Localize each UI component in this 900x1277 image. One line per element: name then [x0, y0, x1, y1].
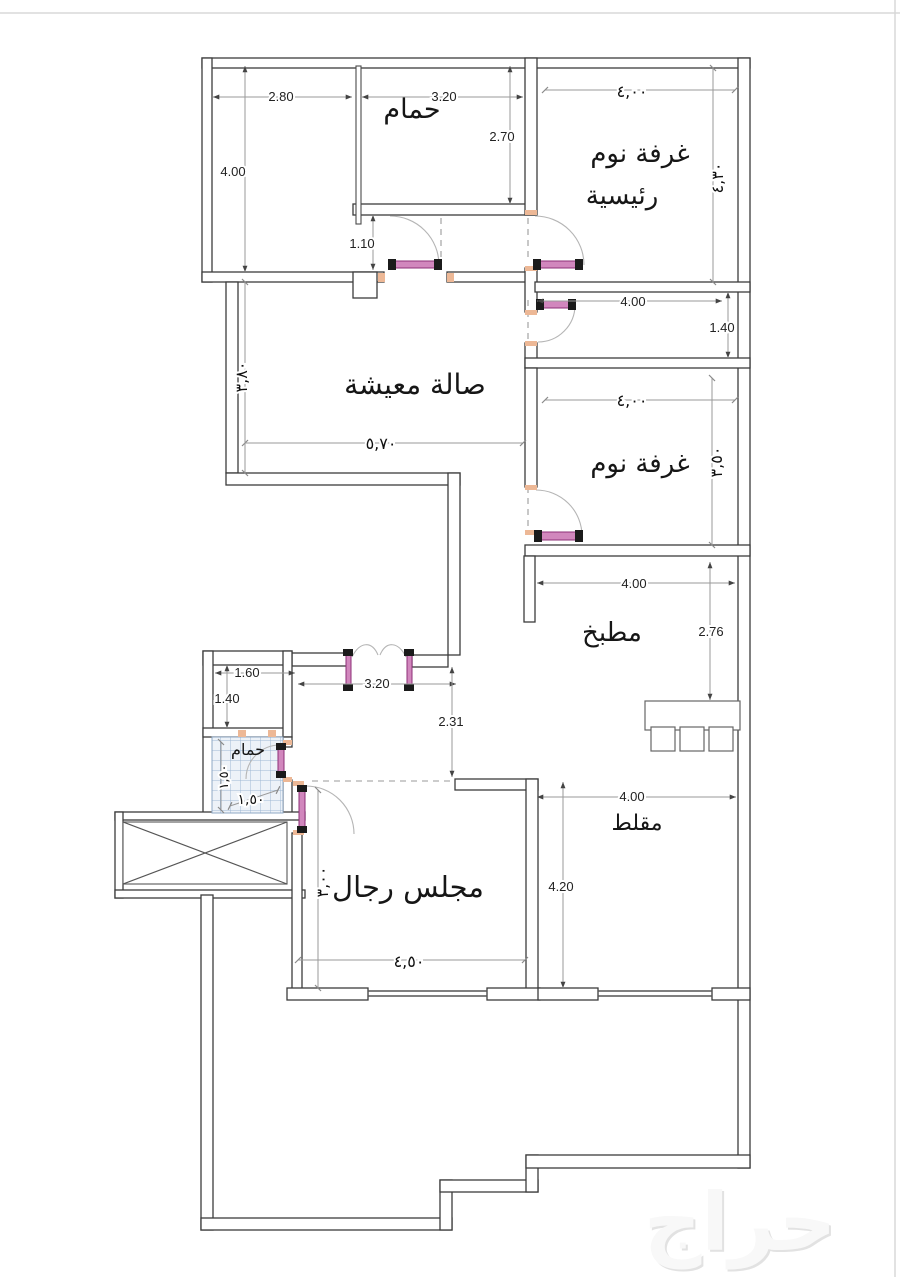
dim-corridor-width: 4.00 [620, 294, 645, 309]
dim-living-height: ٣,٨٠ [232, 362, 251, 393]
dim-majlis-width: ٤,٥٠ [394, 952, 425, 971]
window-majlis [368, 991, 487, 996]
room-label-master-line2: رئيسية [586, 181, 659, 211]
dim-bath-small-height: ١,٥٠ [217, 764, 232, 789]
dim-bedroom2-height: ٣,٥٠ [707, 447, 726, 478]
dim-top-left-width: 2.80 [268, 89, 293, 104]
dim-master-height: ٤,٣٠ [708, 163, 727, 194]
door-leaf-entrance-left [343, 649, 353, 691]
floor-plan-page: 2.80 3.20 2.70 4.00 1.10 ٤,٠٠ ٤,٣٠ 4.00 … [0, 0, 900, 1277]
dim-master-width: ٤,٠٠ [617, 82, 648, 101]
room-label-majlis: مجلس رجال [332, 870, 484, 904]
dim-muqallat-width: 4.00 [619, 789, 644, 804]
door-leaf-bedroom2 [534, 530, 583, 542]
haraj-watermark: حراج حراج [644, 1176, 839, 1272]
room-label-bath-top: حمام [383, 94, 440, 125]
shaft-x-box [123, 822, 287, 884]
floor-plan-canvas: 2.80 3.20 2.70 4.00 1.10 ٤,٠٠ ٤,٣٠ 4.00 … [0, 0, 900, 1277]
room-label-kitchen: مطبخ [582, 618, 642, 648]
dim-bath-top-height: 2.70 [489, 129, 514, 144]
door-opening-dashes [312, 218, 528, 781]
room-label-master-line1: غرفة نوم [590, 139, 689, 169]
door-leaf-master [533, 259, 583, 270]
room-label-bath-small: حمام [231, 740, 265, 759]
dim-bath-small-width: ١,٥٠ [237, 792, 264, 808]
door-leaf-entrance-right [404, 649, 414, 691]
kitchen-counter [645, 701, 740, 751]
walls [115, 58, 750, 1230]
dim-hall-height: 1.40 [214, 691, 239, 706]
room-label-muqallat: مقلط [611, 811, 662, 836]
dim-entry-width: 3.20 [364, 676, 389, 691]
dim-top-left-gap: 1.10 [349, 236, 374, 251]
dim-majlis-height: ٣,٠٠ [313, 867, 332, 898]
dim-hall-width: 1.60 [234, 665, 259, 680]
dim-corridor-height: 1.40 [709, 320, 734, 335]
dim-entry-height: 2.31 [438, 714, 463, 729]
dim-kitchen-height: 2.76 [698, 624, 723, 639]
door-leaf-majlis [297, 785, 307, 833]
dim-kitchen-width: 4.00 [621, 576, 646, 591]
svg-text:حراج: حراج [644, 1176, 837, 1270]
door-leaf-bath-small [276, 743, 286, 778]
dim-bedroom2-width: ٤,٠٠ [617, 391, 648, 410]
dim-top-left-height: 4.00 [220, 164, 245, 179]
room-label-bedroom2: غرفة نوم [590, 449, 689, 479]
dim-muqallat-height: 4.20 [548, 879, 573, 894]
dim-living-width: ٥,٧٠ [366, 434, 397, 453]
door-leaf-dressing [388, 259, 442, 270]
room-label-living: صالة معيشة [344, 368, 486, 401]
window-muqallat [598, 991, 712, 996]
